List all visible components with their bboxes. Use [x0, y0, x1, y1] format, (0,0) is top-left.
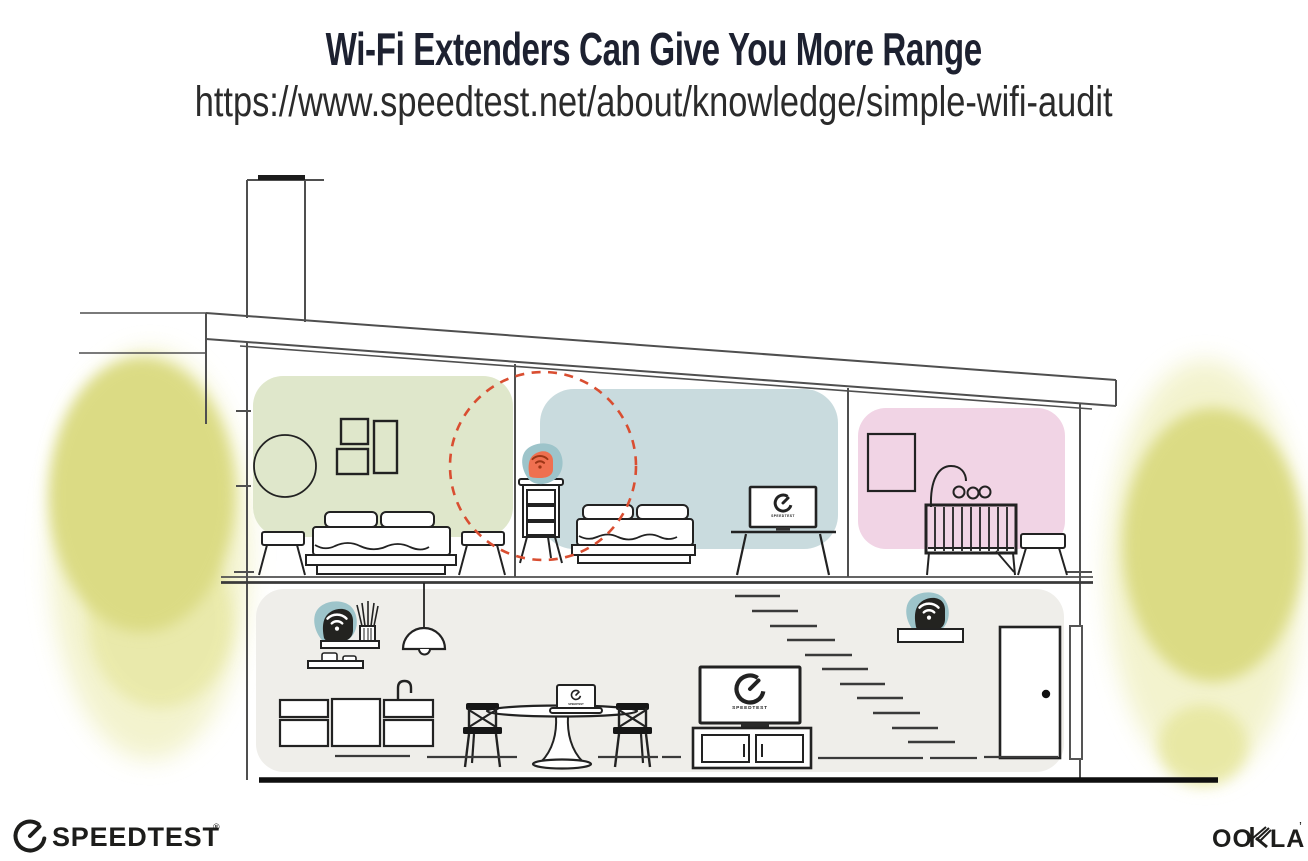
tree-left-core: [49, 358, 235, 632]
tv-console: [693, 728, 811, 768]
chimney: [247, 178, 324, 323]
laptop-label: SPEEDTEST: [568, 702, 584, 706]
ookla-mark: ’: [1299, 819, 1302, 834]
laptop: SPEEDTEST: [550, 685, 602, 713]
bed: [572, 505, 695, 563]
front-door: [1000, 627, 1060, 758]
ookla-oo: OO: [1212, 825, 1253, 853]
ookla-logo: OO LA ’: [1212, 819, 1305, 853]
registered-mark: ®: [213, 822, 220, 832]
tree-left: [49, 350, 250, 760]
tree-right: [1107, 360, 1303, 785]
shelf-board: [321, 641, 379, 648]
speedtest-wordmark: SPEEDTEST: [52, 822, 220, 852]
downspout: [1070, 626, 1082, 759]
tree-right-wash: [1159, 705, 1247, 785]
floor-divider: [221, 577, 1093, 583]
speedtest-logo: SPEEDTEST ®: [16, 822, 220, 852]
living-tv: SPEEDTEST: [700, 667, 800, 727]
living-tv-label: SPEEDTEST: [732, 705, 768, 711]
tree-right-core: [1123, 408, 1303, 682]
dresser: [519, 479, 563, 563]
shelf-board: [308, 661, 363, 668]
nightstand-right: [459, 532, 505, 575]
stool: [1018, 534, 1067, 575]
bedroom-tv-label: SPEEDTEST: [771, 514, 795, 518]
house-illustration: SPEEDTEST: [0, 0, 1308, 861]
door-knob: [1042, 690, 1050, 698]
ookla-k-glyph: [1252, 827, 1271, 847]
nightstand-left: [259, 532, 305, 575]
infographic-page: Wi-Fi Extenders Can Give You More Range …: [0, 0, 1308, 861]
bed: [306, 512, 456, 574]
shelf-board: [898, 629, 963, 642]
